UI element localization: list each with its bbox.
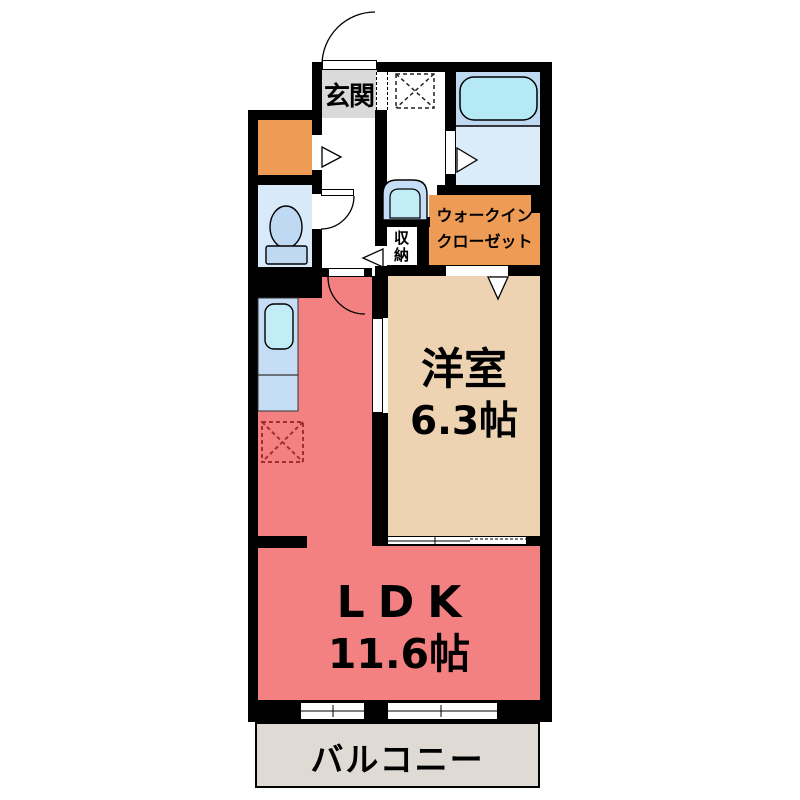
closet-door-marker <box>488 277 508 299</box>
walkin-closet-label-line1: ウォークイン <box>427 203 542 229</box>
genkan-label: 玄関 <box>316 76 382 113</box>
storage-door-marker <box>322 147 341 167</box>
toilet-tank <box>266 246 307 264</box>
bathroom-door-marker <box>457 148 477 172</box>
floor-plan: 玄関 ウォークイン クローゼット 収納 洋室 6.3帖 LDK 11.6帖 バル… <box>0 0 800 800</box>
ldk-size: 11.6帖 <box>279 630 519 679</box>
toilet-bowl <box>270 206 302 248</box>
western-room-name: 洋室 <box>388 344 540 398</box>
western-room-size: 6.3帖 <box>388 398 540 447</box>
refrigerator-area <box>262 422 303 462</box>
ldk-name: LDK <box>279 577 519 630</box>
balcony-label: バルコニー <box>255 733 540 781</box>
washing-machine-area <box>396 74 434 108</box>
walkin-closet-label-line2: クローゼット <box>427 229 542 255</box>
shunou-door-marker <box>363 249 383 267</box>
storage-label: 収納 <box>392 225 412 269</box>
washbasin-bowl <box>390 189 420 218</box>
western-room-label: 洋室 6.3帖 <box>388 344 540 447</box>
walkin-closet-label: ウォークイン クローゼット <box>427 203 542 256</box>
bathtub <box>460 77 537 120</box>
ldk-label: LDK 11.6帖 <box>279 577 519 679</box>
ldk-door-arc <box>328 277 365 314</box>
entrance-door-arc <box>322 12 375 65</box>
toilet-door-arc <box>321 196 354 229</box>
kitchen-sink <box>265 304 293 349</box>
